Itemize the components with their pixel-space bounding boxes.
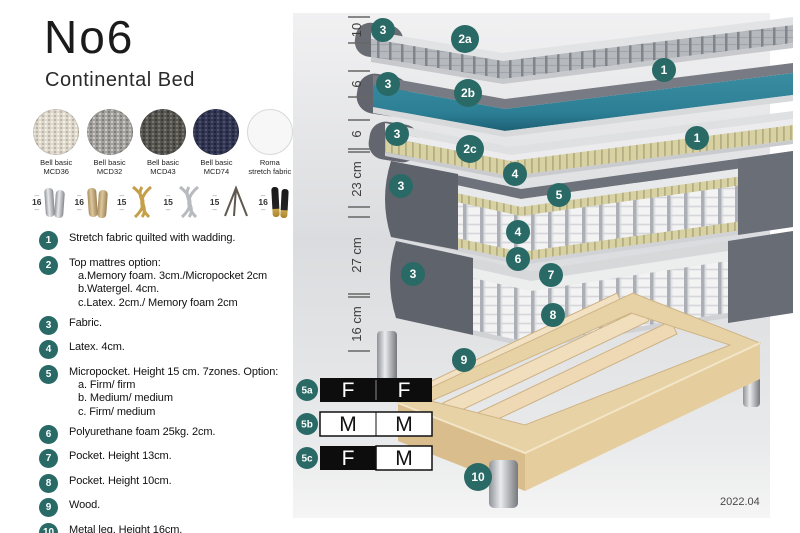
layer-badge: 6 [506,247,530,271]
list-text: Fabric. [69,316,102,330]
svg-text:1: 1 [694,131,701,145]
cylinder-silver-leg-icon [43,185,67,219]
layer-badge: 4 [506,220,530,244]
list-badge: 9 [39,498,58,517]
product-title: No6 [44,14,294,60]
list-badge: 2 [39,256,58,275]
firmness-row-id: 5c [301,454,313,465]
svg-text:5: 5 [556,188,563,202]
svg-text:2a: 2a [458,32,472,46]
list-text: Pocket. Height 10cm. [69,474,172,488]
leg-option-hairpin: –15– [210,185,251,219]
layer-badge: 2c [456,135,484,163]
dimension-label: 10 [349,23,364,37]
firmness-value: F [342,447,355,470]
svg-text:10: 10 [471,470,485,484]
swatch-label: Roma [260,158,280,167]
list-text: Stretch fabric quilted with wadding. [69,231,235,245]
list-text: Metal leg. Height 16cm. [69,523,182,533]
swatch-roma: Romastretch fabric [246,109,294,176]
list-text: Polyurethane foam 25kg. 2cm. [69,425,215,439]
layer-badge: 1 [685,126,709,150]
firmness-value: M [395,413,413,436]
bed-diagram-svg: 10 6 6 23 cm 27 cm 16 cm 3 2a 1 3 2b 1 3 [293,13,800,518]
svg-text:6: 6 [515,252,522,266]
dimension-label: 23 cm [349,161,364,196]
svg-text:9: 9 [461,353,468,367]
list-item: 7 Pocket. Height 13cm. [30,449,294,468]
svg-text:4: 4 [515,225,522,239]
layer-badge: 3 [376,72,400,96]
list-text: Top mattres option: [69,256,267,270]
leg-option-cylinder-wood: –16– [74,185,109,219]
list-text: Wood. [69,498,100,512]
cylinder-wood-leg-icon [86,185,110,219]
swatch-label: Bell basic [200,158,232,167]
page: No6 Continental Bed Bell basicMCD36 Bell… [0,0,800,533]
layer-badge: 2b [454,79,482,107]
leg-options: –16– –16– –15– [32,185,294,219]
list-sub: b. Medium/ medium [78,392,278,406]
firmness-value: F [342,379,355,402]
fabric-swatch-icon [140,109,186,155]
swatch-label: Bell basic [147,158,179,167]
list-item: 8 Pocket. Height 10cm. [30,474,294,493]
firmness-row-id: 5b [301,420,313,431]
layer-badge: 3 [389,174,413,198]
firmness-value: M [339,413,357,436]
list-sub: b.Watergel. 4cm. [78,283,267,297]
list-text: Micropocket. Height 15 cm. 7zones. Optio… [69,365,278,379]
hairpin-leg-icon [221,185,251,219]
cylinder-black-gold-leg-icon [270,185,292,219]
swatch-label: Bell basic [94,158,126,167]
dimension-label: 16 cm [349,306,364,341]
layer-badge: 4 [503,162,527,186]
list-sub: c. Firm/ medium [78,406,278,420]
swatch-label: Bell basic [40,158,72,167]
dimension-label: 6 [349,130,364,137]
list-sub: a.Memory foam. 3cm./Micropocket 2cm [78,270,267,284]
dimension-label: 6 [349,80,364,87]
layer-badge: 7 [539,263,563,287]
fabric-swatch-icon [193,109,239,155]
list-item: 6 Polyurethane foam 25kg. 2cm. [30,425,294,444]
layer-badge: 3 [371,18,395,42]
firmness-row-id: 5a [301,386,313,397]
layer-badge: 3 [401,262,425,286]
layer-badge: 5 [547,183,571,207]
svg-text:1: 1 [661,63,668,77]
info-panel: No6 Continental Bed Bell basicMCD36 Bell… [30,14,294,533]
list-badge: 7 [39,449,58,468]
svg-text:2b: 2b [461,86,475,100]
metal-leg-front [489,460,518,508]
layer-badge: 2a [451,25,479,53]
list-item: 1 Stretch fabric quilted with wadding. [30,231,294,250]
swatch-mcd36: Bell basicMCD36 [32,109,80,176]
list-badge: 5 [39,365,58,384]
leg-option-twisted-silver: –15– [163,185,202,219]
layer-badge: 10 [464,463,492,491]
fabric-swatch-icon [33,109,79,155]
list-badge: 10 [39,523,58,533]
firmness-value: M [395,447,413,470]
list-text: Pocket. Height 13cm. [69,449,172,463]
list-item: 3 Fabric. [30,316,294,335]
svg-text:8: 8 [550,308,557,322]
list-text: Latex. 4cm. [69,340,125,354]
list-badge: 4 [39,340,58,359]
layer-badge: 1 [652,58,676,82]
list-badge: 8 [39,474,58,493]
svg-text:3: 3 [410,267,417,281]
version-label: 2022.04 [720,496,760,508]
product-subtitle: Continental Bed [45,69,294,92]
list-item: 10 Metal leg. Height 16cm. [30,523,294,533]
list-sub: c.Latex. 2cm./ Memory foam 2cm [78,297,267,311]
layer-list: 1 Stretch fabric quilted with wadding. 2… [30,231,294,533]
svg-text:3: 3 [380,23,387,37]
fabric-swatch-icon [87,109,133,155]
layer-badge: 8 [541,303,565,327]
firmness-value: F [398,379,411,402]
fabric-swatch-icon [247,109,293,155]
list-item: 4 Latex. 4cm. [30,340,294,359]
list-badge: 3 [39,316,58,335]
svg-text:2c: 2c [463,142,477,156]
svg-text:3: 3 [394,127,401,141]
svg-text:4: 4 [512,167,519,181]
twisted-gold-leg-icon [128,185,156,219]
swatch-mcd43: Bell basicMCD43 [139,109,187,176]
svg-text:7: 7 [548,268,555,282]
list-item: 2 Top mattres option: a.Memory foam. 3cm… [30,256,294,311]
dimension-label: 27 cm [349,237,364,272]
swatch-mcd74: Bell basicMCD74 [192,109,240,176]
svg-text:3: 3 [385,77,392,91]
list-item: 9 Wood. [30,498,294,517]
swatch-mcd32: Bell basicMCD32 [85,109,133,176]
exploded-bed-diagram: 10 6 6 23 cm 27 cm 16 cm 3 2a 1 3 2b 1 3 [293,13,800,518]
leg-option-cylinder-black-gold: –16– [258,185,291,219]
list-sub: a. Firm/ firm [78,379,278,393]
fabric-swatches: Bell basicMCD36 Bell basicMCD32 Bell bas… [32,109,294,176]
leg-option-cylinder-silver: –16– [32,185,67,219]
list-badge: 6 [39,425,58,444]
layer-badge: 9 [452,348,476,372]
twisted-silver-leg-icon [175,185,203,219]
firmness-table: 5a F F 5b M M 5c F M [296,378,432,470]
svg-text:3: 3 [398,179,405,193]
leg-option-twisted-gold: –15– [117,185,156,219]
layer-badge: 3 [385,122,409,146]
list-badge: 1 [39,231,58,250]
list-item: 5 Micropocket. Height 15 cm. 7zones. Opt… [30,365,294,420]
